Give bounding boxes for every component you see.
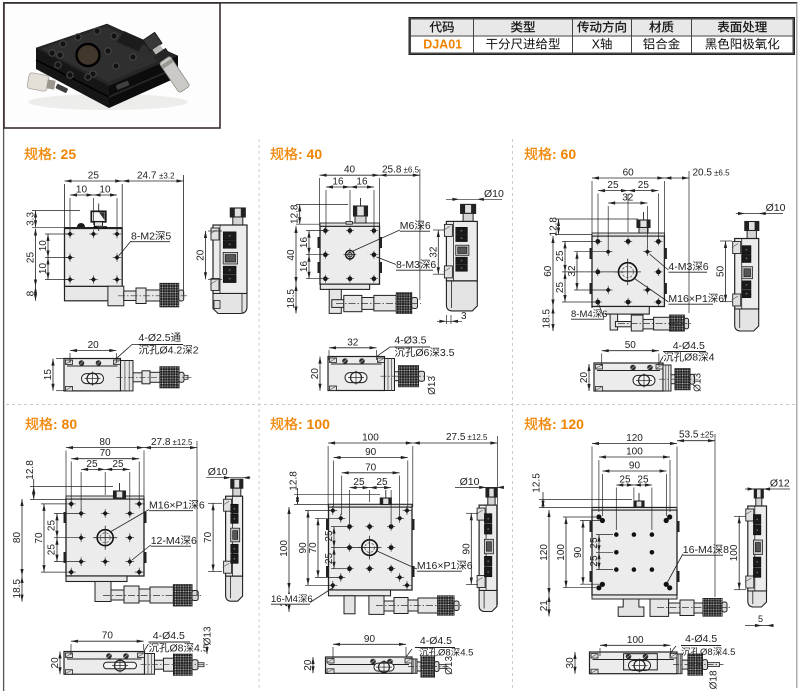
- svg-text:25: 25: [376, 477, 388, 488]
- svg-text:16: 16: [356, 177, 368, 188]
- svg-text:Ø10: Ø10: [208, 466, 228, 478]
- svg-text:25: 25: [88, 171, 100, 182]
- svg-text:70: 70: [365, 462, 377, 473]
- svg-text:M16×P1: M16×P1: [417, 560, 457, 572]
- svg-text:100: 100: [362, 433, 379, 444]
- svg-text:70: 70: [203, 531, 214, 543]
- svg-text:12.8: 12.8: [290, 204, 301, 224]
- svg-text:25: 25: [353, 477, 365, 488]
- svg-text:6: 6: [307, 594, 312, 605]
- svg-text:25: 25: [47, 520, 58, 532]
- svg-text:8-M4: 8-M4: [571, 309, 593, 320]
- svg-text:4-Ø2.5: 4-Ø2.5: [139, 332, 171, 344]
- svg-text:6: 6: [703, 261, 709, 273]
- svg-text:10: 10: [38, 263, 49, 275]
- svg-text:±6.5: ±6.5: [714, 169, 730, 178]
- svg-text:Ø18: Ø18: [709, 670, 720, 689]
- svg-text:Ø10: Ø10: [766, 202, 786, 214]
- svg-text:6: 6: [718, 293, 724, 305]
- svg-text:4.5: 4.5: [460, 648, 473, 659]
- svg-text:Ø8: Ø8: [438, 648, 451, 659]
- svg-text:90: 90: [461, 543, 472, 555]
- svg-text:100: 100: [279, 540, 290, 557]
- svg-text:25: 25: [555, 250, 566, 262]
- svg-text:16-M4: 16-M4: [271, 594, 298, 605]
- svg-text:25: 25: [637, 474, 649, 485]
- svg-text:6: 6: [602, 309, 607, 320]
- svg-text:Ø12: Ø12: [770, 478, 790, 490]
- svg-text:3.5: 3.5: [440, 347, 455, 359]
- svg-text:Ø13: Ø13: [427, 376, 438, 395]
- svg-text:40: 40: [344, 165, 356, 176]
- svg-text:: 120: : 120: [552, 416, 584, 432]
- svg-text:±6.5: ±6.5: [404, 166, 420, 175]
- svg-text:4-Ø4.5: 4-Ø4.5: [420, 635, 452, 647]
- svg-text:80: 80: [99, 437, 111, 448]
- svg-text:Ø10: Ø10: [484, 188, 504, 200]
- svg-text:16: 16: [332, 177, 344, 188]
- svg-text:8: 8: [26, 290, 37, 296]
- svg-text:4.5: 4.5: [722, 647, 735, 658]
- svg-text:70: 70: [308, 542, 319, 554]
- svg-text:50: 50: [716, 265, 727, 277]
- svg-text:12.8: 12.8: [549, 217, 560, 237]
- svg-text:3.3: 3.3: [26, 212, 37, 226]
- svg-text:80: 80: [12, 532, 23, 544]
- svg-text:25: 25: [324, 553, 335, 565]
- svg-text:Ø8: Ø8: [684, 352, 698, 364]
- svg-text:60: 60: [543, 265, 554, 277]
- svg-text:: 25: : 25: [52, 146, 76, 162]
- svg-text:4-Ø4.5: 4-Ø4.5: [685, 633, 717, 645]
- svg-text:20: 20: [88, 340, 100, 351]
- svg-text:40: 40: [286, 249, 297, 261]
- svg-text:6: 6: [425, 220, 431, 232]
- svg-text:4-Ø4.5: 4-Ø4.5: [153, 630, 185, 642]
- svg-text:: 100: : 100: [298, 416, 330, 432]
- svg-text:5: 5: [758, 614, 763, 624]
- svg-text:6: 6: [191, 535, 197, 547]
- svg-text:100: 100: [556, 544, 567, 561]
- svg-text:25: 25: [86, 459, 98, 470]
- svg-text:27.8: 27.8: [151, 437, 171, 448]
- svg-text:8-M2: 8-M2: [131, 231, 155, 243]
- svg-text:100: 100: [627, 635, 644, 646]
- svg-text:100: 100: [626, 447, 643, 458]
- svg-text:10: 10: [99, 185, 111, 196]
- svg-text:18.5: 18.5: [12, 579, 23, 599]
- svg-text:25: 25: [607, 180, 619, 191]
- svg-text:30: 30: [565, 657, 576, 669]
- svg-text:32: 32: [567, 265, 578, 277]
- svg-text:32: 32: [347, 337, 359, 348]
- svg-text:20: 20: [579, 372, 590, 384]
- svg-text:70: 70: [34, 532, 45, 544]
- svg-text:20: 20: [310, 368, 321, 380]
- svg-text:25: 25: [638, 180, 650, 191]
- svg-text:Ø13: Ø13: [693, 373, 704, 392]
- svg-text:18.5: 18.5: [286, 289, 297, 309]
- svg-text:90: 90: [364, 634, 376, 645]
- svg-text:12-M4: 12-M4: [151, 535, 181, 547]
- svg-text:90: 90: [573, 546, 584, 558]
- svg-text:25.8: 25.8: [382, 165, 402, 176]
- svg-text:53.5: 53.5: [679, 430, 699, 441]
- svg-text:X: X: [592, 38, 601, 52]
- svg-text:16: 16: [299, 261, 310, 273]
- svg-text:: 60: : 60: [552, 146, 576, 162]
- svg-text:4-Ø3.5: 4-Ø3.5: [394, 335, 426, 347]
- svg-text:25: 25: [324, 530, 335, 542]
- svg-text:15: 15: [43, 369, 54, 381]
- svg-text:Ø8: Ø8: [700, 647, 713, 658]
- svg-text:20.5: 20.5: [693, 168, 713, 179]
- svg-text:4.5: 4.5: [194, 643, 209, 655]
- svg-text:25: 25: [589, 537, 600, 549]
- svg-text:10: 10: [76, 185, 88, 196]
- svg-text:70: 70: [102, 631, 114, 642]
- svg-text:90: 90: [365, 447, 377, 458]
- svg-text:21: 21: [539, 600, 550, 612]
- svg-text:12.8: 12.8: [25, 460, 36, 480]
- svg-text:: 80: : 80: [53, 416, 77, 432]
- svg-text:2: 2: [193, 345, 199, 357]
- svg-text:±12.5: ±12.5: [468, 433, 489, 442]
- svg-text:6: 6: [199, 500, 205, 512]
- svg-text:24.7: 24.7: [137, 171, 157, 182]
- svg-text:25: 25: [26, 252, 37, 264]
- svg-text:25: 25: [589, 555, 600, 567]
- svg-text:25: 25: [619, 474, 631, 485]
- svg-text:4-Ø4.5: 4-Ø4.5: [673, 340, 705, 352]
- svg-text:6: 6: [467, 560, 473, 572]
- svg-text:16: 16: [299, 237, 310, 249]
- svg-text:±25: ±25: [701, 431, 715, 440]
- svg-text:8-M3: 8-M3: [396, 259, 420, 271]
- svg-text:12.8: 12.8: [289, 471, 300, 491]
- svg-text:25: 25: [555, 282, 566, 294]
- svg-text:12.5: 12.5: [532, 473, 543, 493]
- svg-text:M6: M6: [400, 220, 415, 232]
- svg-text:M16×P1: M16×P1: [149, 500, 189, 512]
- svg-text:DJA01: DJA01: [423, 38, 462, 52]
- svg-text:6: 6: [430, 259, 436, 271]
- svg-text:: 40: : 40: [298, 146, 322, 162]
- svg-text:70: 70: [100, 448, 112, 459]
- svg-text:16-M4: 16-M4: [683, 544, 713, 556]
- svg-text:3: 3: [461, 311, 467, 322]
- svg-text:Ø10: Ø10: [460, 476, 480, 488]
- svg-text:20: 20: [303, 659, 314, 671]
- svg-text:32: 32: [428, 246, 439, 258]
- svg-text:5: 5: [165, 231, 171, 243]
- svg-text:Ø4.2: Ø4.2: [160, 345, 183, 357]
- svg-text:20: 20: [50, 657, 61, 669]
- svg-text:±3.2: ±3.2: [159, 172, 175, 181]
- svg-text:Ø8: Ø8: [170, 643, 184, 655]
- svg-text:32: 32: [622, 193, 634, 204]
- svg-text:±12.5: ±12.5: [173, 438, 194, 447]
- svg-text:50: 50: [625, 340, 637, 351]
- svg-text:20: 20: [196, 249, 207, 261]
- svg-text:M16×P1: M16×P1: [668, 293, 708, 305]
- svg-text:100: 100: [729, 544, 740, 561]
- svg-text:25: 25: [112, 459, 124, 470]
- svg-text:27.5: 27.5: [446, 432, 466, 443]
- svg-text:4: 4: [709, 352, 715, 364]
- svg-text:10: 10: [38, 240, 49, 252]
- svg-text:8: 8: [723, 544, 729, 556]
- svg-text:Ø6: Ø6: [415, 347, 429, 359]
- svg-text:120: 120: [626, 433, 643, 444]
- svg-text:60: 60: [623, 168, 635, 179]
- svg-text:25: 25: [47, 544, 58, 556]
- svg-text:90: 90: [629, 461, 641, 472]
- svg-text:18.5: 18.5: [542, 309, 553, 329]
- svg-text:120: 120: [539, 544, 550, 561]
- svg-text:4-M3: 4-M3: [668, 261, 692, 273]
